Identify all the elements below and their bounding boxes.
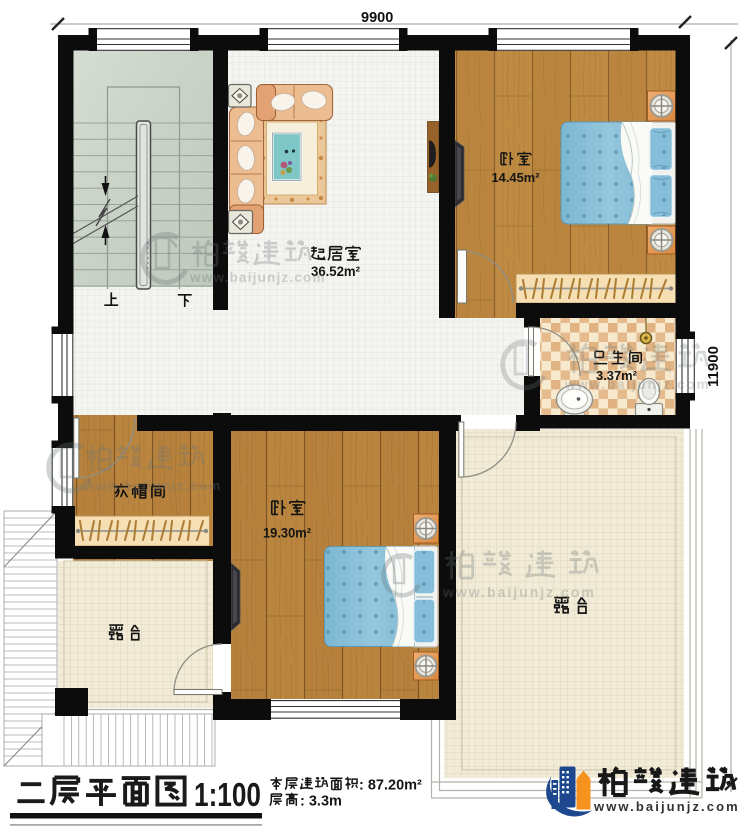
svg-text:www.baijunjz.com: www.baijunjz.com [442, 584, 596, 600]
svg-text:1:100: 1:100 [194, 776, 261, 813]
svg-text:9900: 9900 [361, 10, 393, 26]
svg-text:www.baijunjz.com: www.baijunjz.com [83, 478, 222, 493]
svg-text:: 3.3m: : 3.3m [300, 794, 342, 810]
svg-text:11900: 11900 [705, 346, 722, 387]
svg-text:www.baijunjz.com: www.baijunjz.com [189, 270, 326, 285]
svg-text:14.45m²: 14.45m² [492, 170, 541, 185]
svg-text:: 87.20m²: : 87.20m² [359, 778, 422, 794]
svg-text:www.baijunjz.com: www.baijunjz.com [593, 799, 740, 814]
svg-text:19.30m²: 19.30m² [263, 526, 311, 541]
svg-text:www.baijunjz.com: www.baijunjz.com [564, 377, 710, 392]
